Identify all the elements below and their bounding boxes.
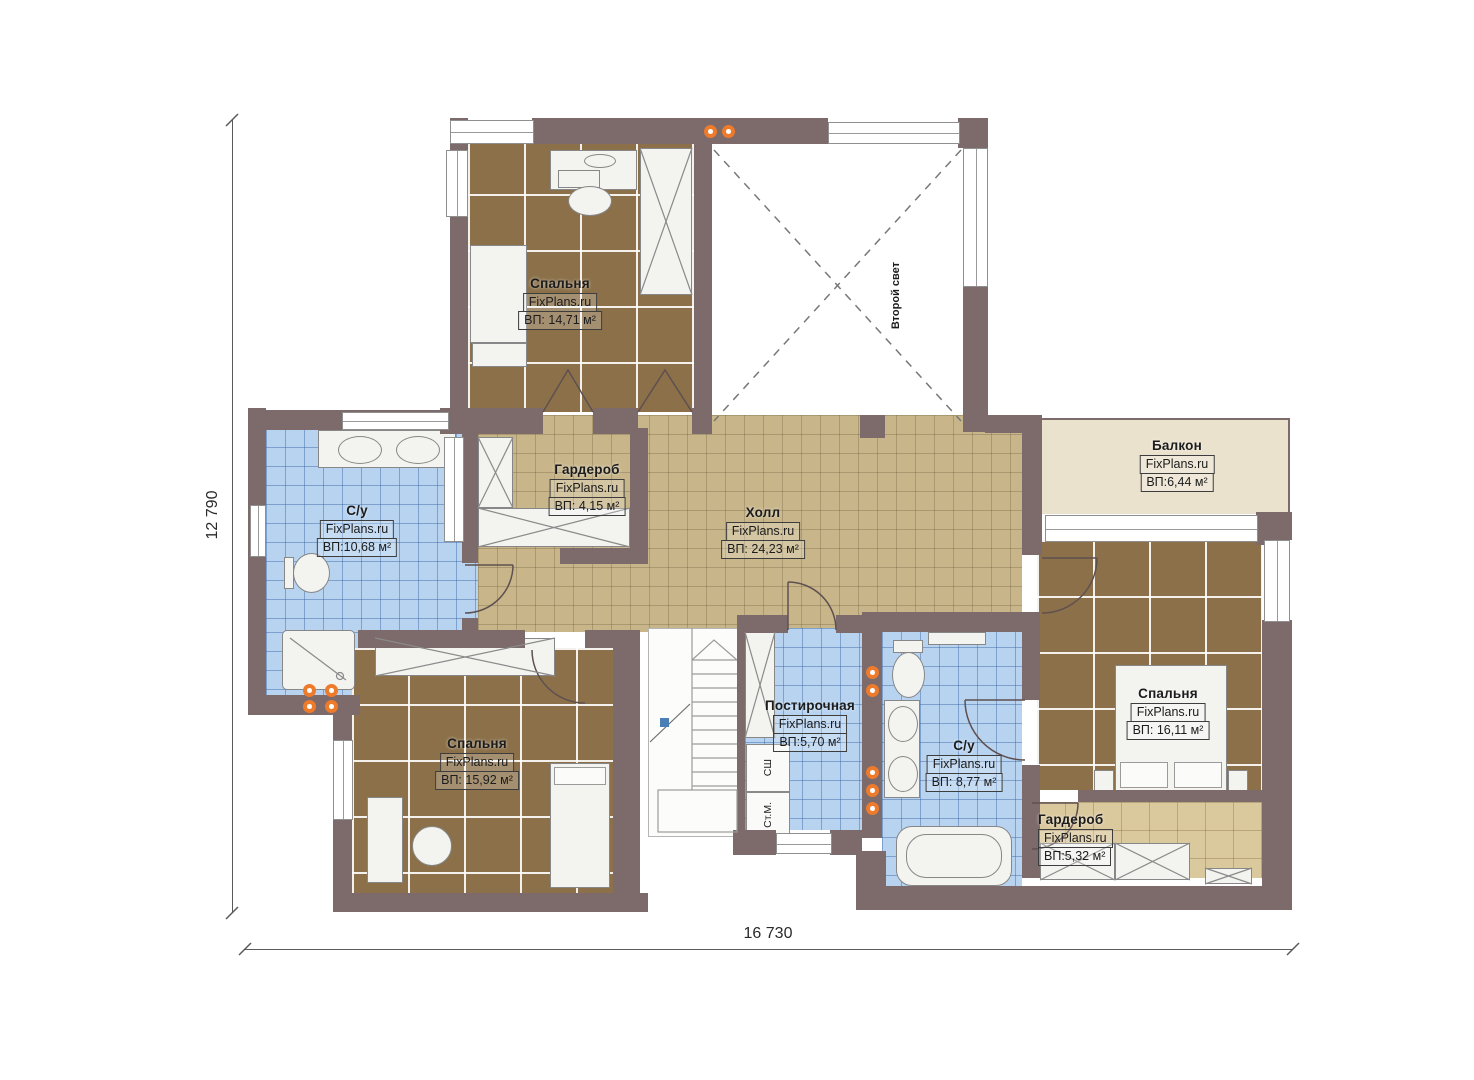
dimension-width: 16 730 <box>718 925 818 943</box>
riser-dot <box>722 125 735 138</box>
room-watermark: FixPlans.ru <box>726 522 801 541</box>
room-watermark: FixPlans.ru <box>773 715 848 734</box>
washer-label: Ст.М. <box>762 802 774 828</box>
room-name: Спальня <box>530 276 590 291</box>
room-watermark: FixPlans.ru <box>1131 703 1206 722</box>
window <box>776 833 832 854</box>
room-name: Гардероб <box>1038 812 1103 827</box>
room-label-bath-right: С/у FixPlans.ru ВП: 8,77 м² <box>926 738 1003 792</box>
nightstand <box>472 343 527 367</box>
riser-dot <box>866 802 879 815</box>
room-name: С/у <box>953 738 975 753</box>
wall-segment <box>860 415 885 438</box>
floor-void-space <box>712 148 963 425</box>
window <box>450 120 534 144</box>
riser-dot <box>303 684 316 697</box>
room-name: С/у <box>346 503 368 518</box>
window <box>963 148 988 287</box>
sink <box>338 436 382 464</box>
sink <box>888 706 918 742</box>
wall-segment <box>737 628 745 830</box>
wall-segment <box>630 428 648 548</box>
wardrobe-cabinet <box>1115 843 1190 880</box>
room-watermark: FixPlans.ru <box>550 479 625 498</box>
dimension-line-bottom <box>245 949 1293 950</box>
window <box>333 740 353 820</box>
wall-segment <box>358 630 525 648</box>
room-watermark: FixPlans.ru <box>1038 829 1113 848</box>
window <box>1264 540 1290 622</box>
room-label-wardrobe-right: Гардероб FixPlans.ru ВП:5,32 м² <box>1038 812 1113 866</box>
riser-dot <box>325 700 338 713</box>
room-label-bedroom-right: Спальня FixPlans.ru ВП: 16,11 м² <box>1127 686 1210 740</box>
wall-segment <box>958 118 988 148</box>
window <box>1045 515 1258 542</box>
wall-segment <box>856 851 886 891</box>
room-name: Холл <box>746 505 781 520</box>
desk-chair <box>568 186 612 216</box>
room-watermark: FixPlans.ru <box>523 293 598 312</box>
wall-segment <box>862 612 1040 632</box>
room-name: Постирочная <box>765 698 855 713</box>
room-area: ВП: 8,77 м² <box>926 773 1003 792</box>
window <box>828 122 960 144</box>
shelf <box>928 632 986 645</box>
dryer-label: СШ <box>762 759 774 776</box>
wall-segment <box>440 408 543 434</box>
room-label-wardrobe-top: Гардероб FixPlans.ru ВП: 4,15 м² <box>549 462 626 516</box>
room-label-bedroom-bottom: Спальня FixPlans.ru ВП: 15,92 м² <box>435 736 519 790</box>
bench <box>1205 868 1252 884</box>
wall-segment <box>462 428 478 563</box>
room-watermark: FixPlans.ru <box>1140 455 1215 474</box>
wall-segment <box>248 408 266 712</box>
wall-segment <box>1078 790 1263 802</box>
riser-dot <box>704 125 717 138</box>
dimension-height: 12 790 <box>204 484 222 546</box>
pillow <box>1120 762 1168 788</box>
room-name: Спальня <box>1138 686 1198 701</box>
wall-segment <box>1022 790 1032 802</box>
wall-segment <box>692 408 712 434</box>
room-name: Балкон <box>1152 438 1202 453</box>
shower-tray <box>282 630 355 690</box>
sink <box>888 756 918 792</box>
closet <box>640 148 692 295</box>
window <box>444 437 464 542</box>
riser-dot <box>866 784 879 797</box>
wall-segment <box>1022 615 1040 632</box>
wall-segment <box>532 118 828 144</box>
room-area: ВП: 24,23 м² <box>721 540 805 559</box>
riser-dot <box>325 684 338 697</box>
room-label-bath-left: С/у FixPlans.ru ВП:10,68 м² <box>317 503 397 557</box>
pillow <box>1174 762 1222 788</box>
wall-segment <box>694 118 712 425</box>
room-area: ВП:5,32 м² <box>1038 847 1111 866</box>
desk <box>367 797 403 883</box>
room-label-bedroom-top: Спальня FixPlans.ru ВП: 14,71 м² <box>518 276 602 330</box>
bathtub-basin <box>906 834 1002 878</box>
wall-segment <box>1022 632 1040 700</box>
room-area: ВП: 15,92 м² <box>435 771 519 790</box>
room-watermark: FixPlans.ru <box>320 520 395 539</box>
desk-lamp <box>584 154 616 168</box>
wall-segment <box>333 893 648 912</box>
dimension-line-left <box>232 120 233 913</box>
wall-segment <box>963 283 988 432</box>
floor-staircase <box>648 628 739 837</box>
room-watermark: FixPlans.ru <box>440 753 515 772</box>
room-watermark: FixPlans.ru <box>927 755 1002 774</box>
room-area: ВП:6,44 м² <box>1140 473 1213 492</box>
window <box>446 150 468 217</box>
window <box>342 412 449 430</box>
room-name: Спальня <box>447 736 507 751</box>
wall-segment <box>856 886 1292 910</box>
room-area: ВП:5,70 м² <box>773 733 846 752</box>
room-name: Гардероб <box>554 462 619 477</box>
riser-dot <box>303 700 316 713</box>
room-label-laundry: Постирочная FixPlans.ru ВП:5,70 м² <box>765 698 855 752</box>
room-area: ВП:10,68 м² <box>317 538 397 557</box>
riser-dot <box>866 684 879 697</box>
floor-plan-page: СШ Ст.М. <box>0 0 1474 1080</box>
wall-segment <box>1022 415 1042 555</box>
sink <box>396 436 440 464</box>
room-area: ВП: 16,11 м² <box>1127 721 1210 740</box>
room-area: ВП: 4,15 м² <box>549 497 626 516</box>
room-label-balcony: Балкон FixPlans.ru ВП:6,44 м² <box>1140 438 1215 492</box>
pillow <box>554 767 606 785</box>
void-space-label: Второй свет <box>890 262 902 329</box>
wall-segment <box>560 548 648 564</box>
wall-segment <box>1272 512 1292 540</box>
riser-dot <box>866 766 879 779</box>
desk-chair <box>412 826 452 866</box>
toilet <box>293 553 330 593</box>
wall-segment <box>1262 620 1292 886</box>
wardrobe-cabinet <box>478 437 513 508</box>
window <box>250 505 266 557</box>
wall-segment <box>585 630 613 648</box>
wall-segment <box>613 630 640 912</box>
wall-segment <box>733 830 776 855</box>
riser-dot <box>866 666 879 679</box>
room-label-hall: Холл FixPlans.ru ВП: 24,23 м² <box>721 505 805 559</box>
wall-segment <box>836 615 862 633</box>
room-area: ВП: 14,71 м² <box>518 311 602 330</box>
toilet <box>892 652 925 698</box>
